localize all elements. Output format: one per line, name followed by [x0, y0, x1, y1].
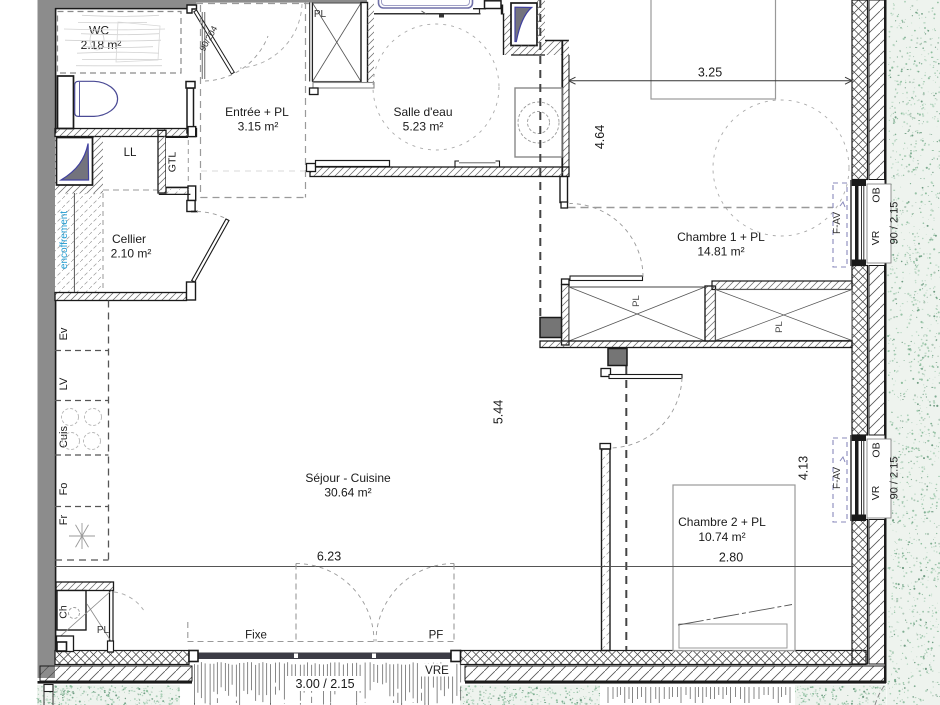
svg-text:2.80: 2.80 — [719, 551, 743, 565]
svg-text:3.15 m²: 3.15 m² — [238, 120, 279, 134]
svg-text:Fixe: Fixe — [245, 630, 267, 642]
svg-text:Salle d'eau: Salle d'eau — [393, 105, 452, 119]
svg-text:Entrée + PL: Entrée + PL — [225, 105, 289, 119]
svg-text:VR: VR — [870, 485, 882, 500]
svg-text:3.25: 3.25 — [698, 66, 722, 80]
svg-text:Cellier: Cellier — [112, 232, 146, 246]
svg-text:OB: OB — [871, 442, 883, 457]
svg-text:Ev: Ev — [58, 327, 70, 340]
svg-text:30.64 m²: 30.64 m² — [324, 486, 371, 500]
svg-text:2.18 m²: 2.18 m² — [81, 38, 122, 52]
svg-text:PL: PL — [774, 321, 785, 333]
svg-text:OB: OB — [871, 187, 883, 202]
svg-text:Séjour - Cuisine: Séjour - Cuisine — [305, 471, 391, 485]
svg-text:PL: PL — [314, 9, 327, 20]
svg-text:F-AV: F-AV — [832, 467, 843, 489]
svg-text:90 / 2.15: 90 / 2.15 — [889, 202, 901, 245]
svg-text:4.64: 4.64 — [593, 125, 607, 149]
svg-text:VR: VR — [870, 230, 882, 245]
svg-text:Ch: Ch — [58, 605, 70, 619]
svg-text:2.10 m²: 2.10 m² — [111, 247, 152, 261]
svg-text:90 / 2.15: 90 / 2.15 — [889, 457, 901, 500]
svg-text:LL: LL — [124, 147, 137, 159]
svg-text:5.23 m²: 5.23 m² — [403, 120, 444, 134]
svg-text:LV: LV — [58, 377, 70, 390]
svg-text:F-AV: F-AV — [832, 212, 843, 234]
svg-text:6.23: 6.23 — [317, 550, 341, 564]
svg-text:10.74 m²: 10.74 m² — [698, 530, 745, 544]
svg-text:3.00 / 2.15: 3.00 / 2.15 — [295, 677, 354, 691]
svg-text:Fr: Fr — [58, 514, 70, 525]
svg-text:PL: PL — [97, 625, 110, 636]
svg-text:4.13: 4.13 — [797, 456, 811, 480]
svg-text:PF: PF — [429, 630, 444, 642]
svg-text:Chambre 1 + PL: Chambre 1 + PL — [677, 230, 765, 244]
svg-text:14.81 m²: 14.81 m² — [697, 245, 744, 259]
svg-text:PL: PL — [631, 295, 642, 307]
svg-text:encoffrement: encoffrement — [59, 211, 70, 269]
svg-text:Fo: Fo — [58, 483, 70, 496]
svg-text:Chambre 2 + PL: Chambre 2 + PL — [678, 515, 766, 529]
svg-text:5.44: 5.44 — [492, 400, 506, 424]
svg-text:GTL: GTL — [167, 152, 179, 173]
svg-text:VRE: VRE — [425, 665, 449, 677]
